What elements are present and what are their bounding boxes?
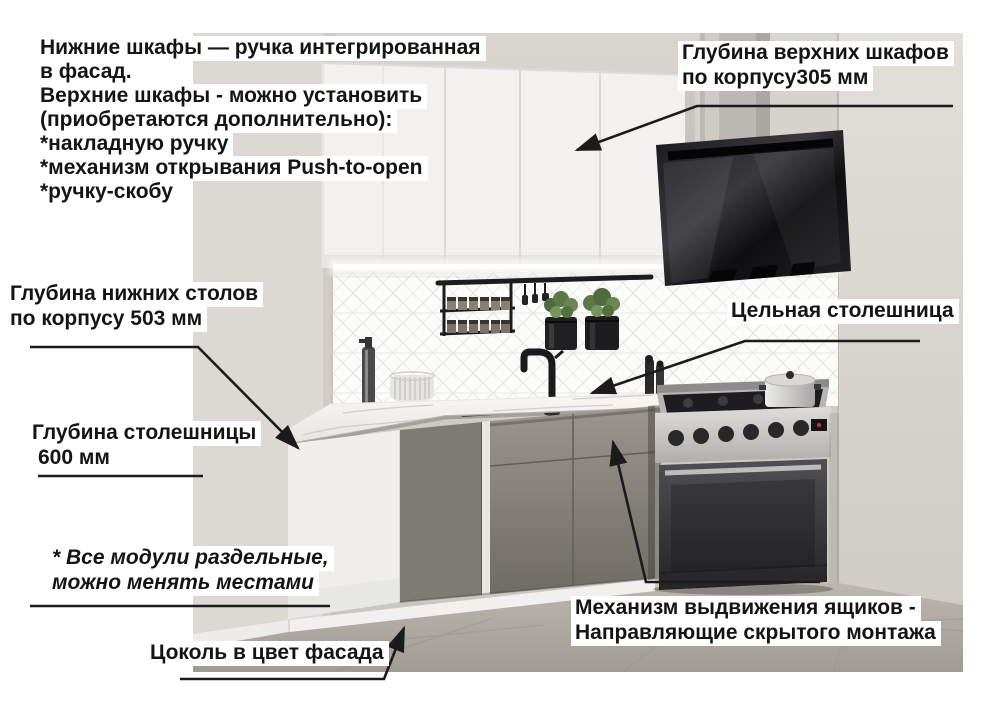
label-line: Глубина нижних столов [6,281,263,306]
label-line: *накладную ручку [36,132,486,156]
label-modules-note: * Все модули раздельные, можно менять ме… [48,545,334,595]
label-line: Глубина верхних шкафов [678,40,954,65]
label-line: в фасад. [36,60,486,84]
label-line: 600 мм [28,445,261,470]
label-line: Нижние шкафы — ручка интегрированная [36,36,486,60]
label-drawer-mechanism: Механизм выдвижения ящиков - Направляющи… [571,595,941,645]
label-line: (приобретаются дополнительно): [36,108,486,132]
stove [648,371,839,595]
label-solid-countertop: Цельная столешница [727,298,959,323]
label-line: Цоколь в цвет фасада [146,640,389,665]
label-line: Механизм выдвижения ящиков - [571,595,941,620]
annotated-kitchen-diagram: Нижние шкафы — ручка интегрированная в ф… [0,0,1000,707]
label-line: Направляющие скрытого монтажа [571,620,941,645]
label-line: *ручку-скобу [36,180,486,204]
label-upper-cabinets-depth: Глубина верхних шкафов по корпусу305 мм [678,40,954,90]
label-plinth: Цоколь в цвет фасада [146,640,389,665]
label-line: по корпусу305 мм [678,65,954,90]
label-countertop-depth: Глубина столешницы 600 мм [28,420,261,470]
label-handles-note: Нижние шкафы — ручка интегрированная в ф… [36,36,486,204]
label-line: * Все модули раздельные, [48,545,334,570]
label-line: Цельная столешница [727,298,959,323]
label-lower-cabinets-depth: Глубина нижних столов по корпусу 503 мм [6,281,263,331]
label-line: Глубина столешницы [28,420,261,445]
label-line: по корпусу 503 мм [6,306,263,331]
label-line: *механизм открывания Push-to-open [36,156,486,180]
label-line: Верхние шкафы - можно установить [36,84,486,108]
label-line: можно менять местами [48,570,334,595]
